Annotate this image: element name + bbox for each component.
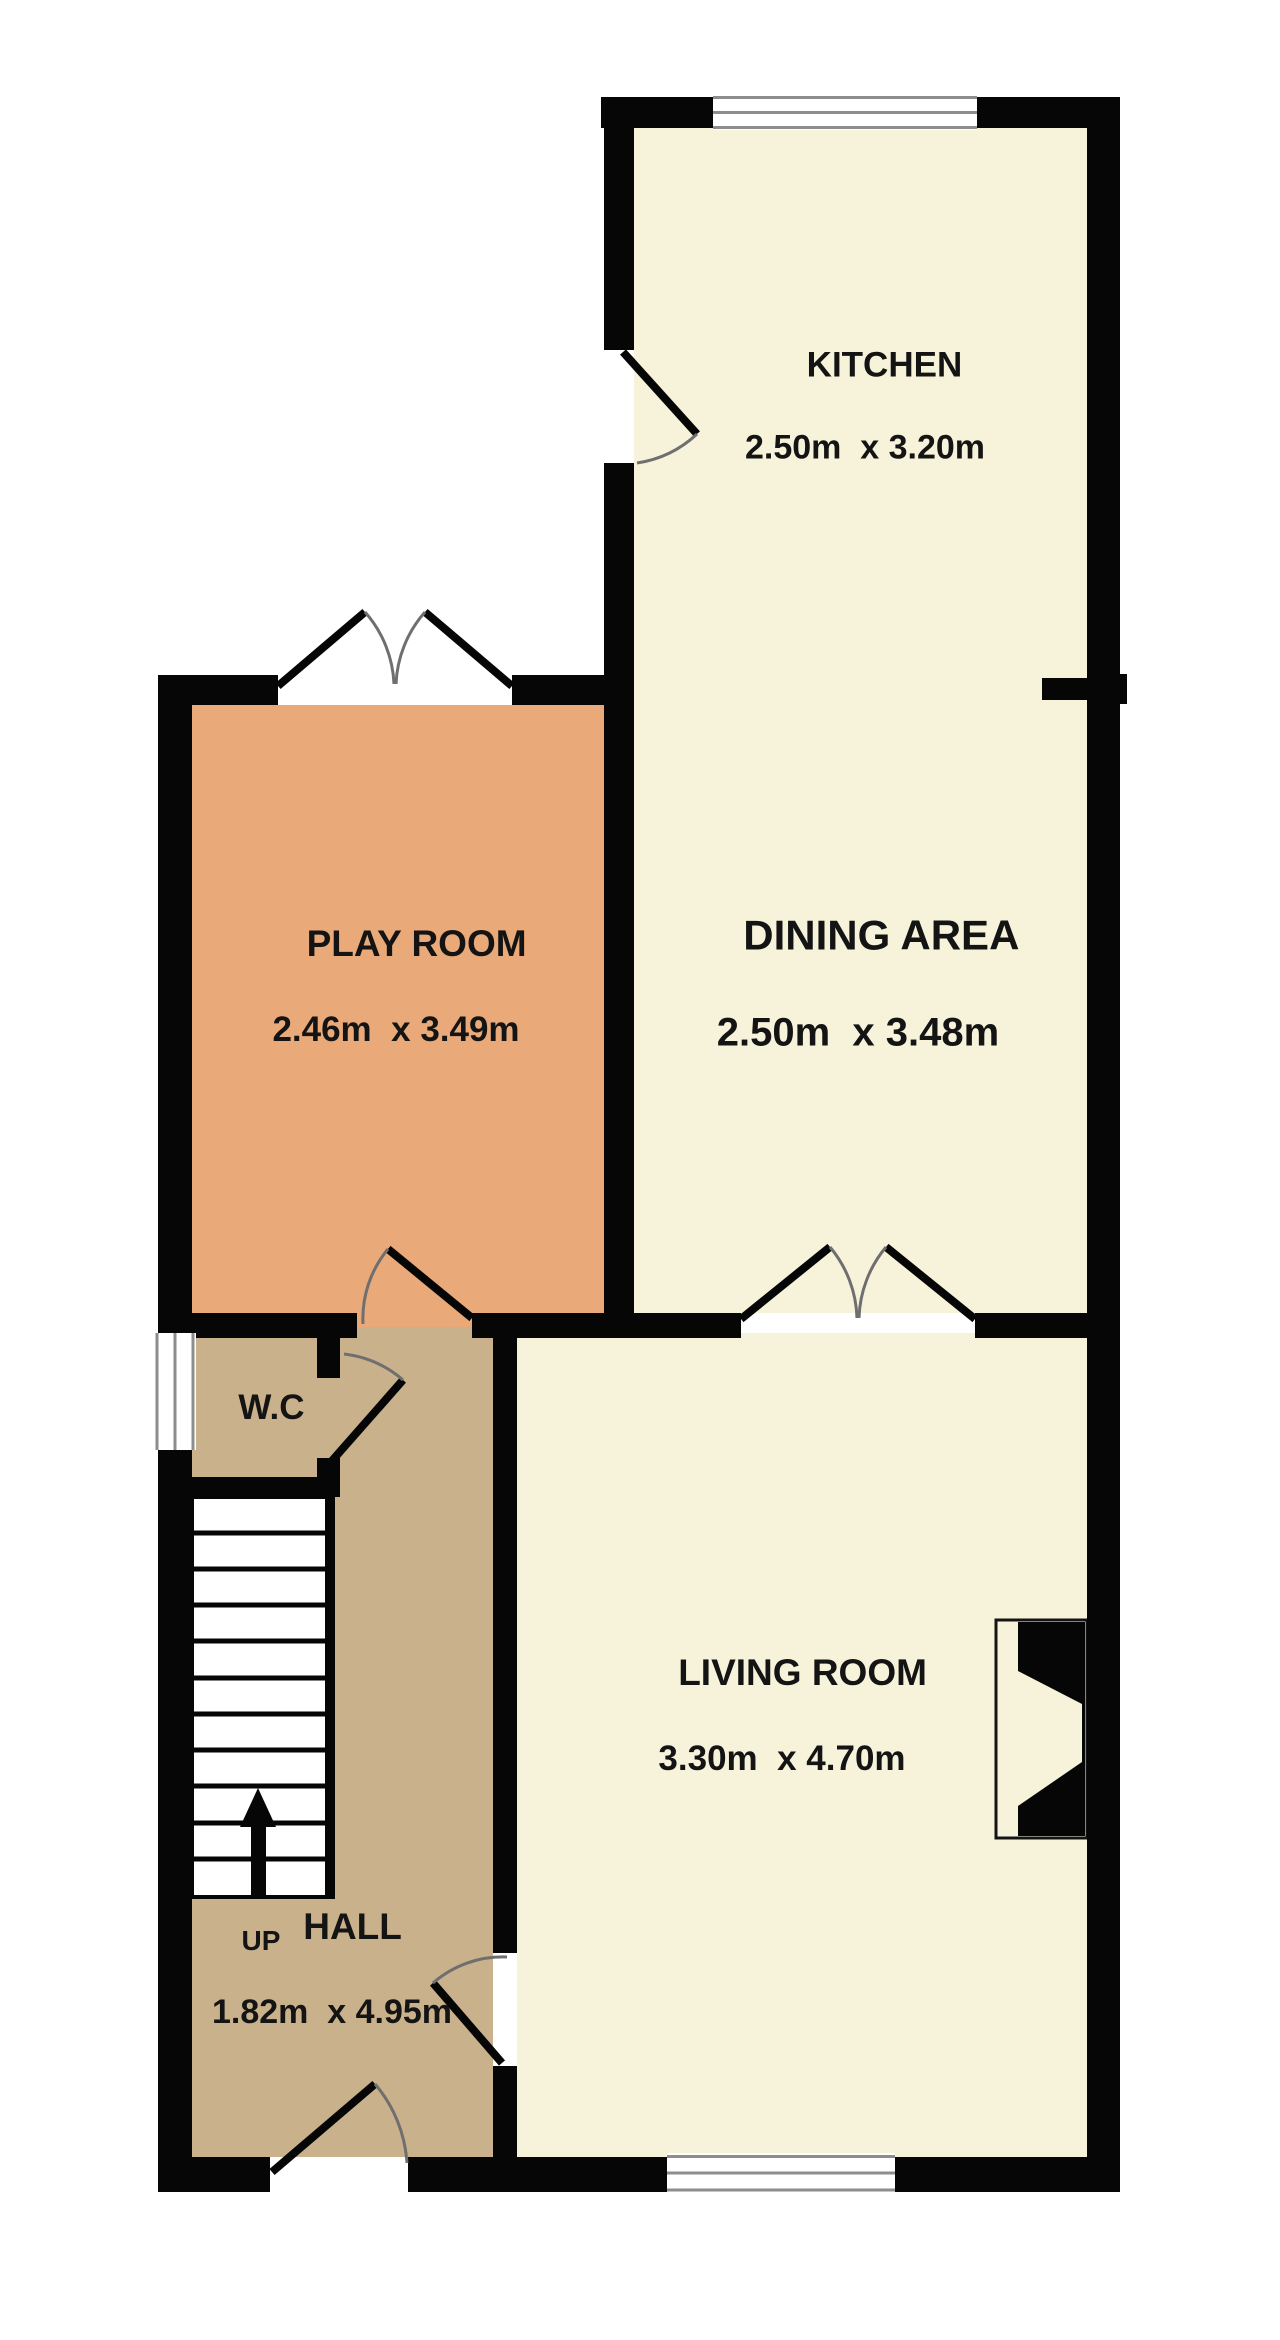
wall-segment xyxy=(604,463,634,1338)
floorplan-drawing xyxy=(0,0,1280,2340)
room-name: LIVING ROOM xyxy=(678,1652,927,1693)
wall-segment xyxy=(408,2157,667,2192)
wall-segment xyxy=(158,675,192,1333)
room-name: HALL xyxy=(303,1905,402,1946)
room-label-wc: W.C xyxy=(199,1346,304,1470)
stairs-right-rail xyxy=(325,1497,333,1897)
room-dimensions: 2.46m x 3.49m xyxy=(265,1009,526,1050)
staircase xyxy=(192,1497,333,1897)
room-dimensions: 1.82m x 4.95m xyxy=(212,1992,452,2032)
playroom-double-doors xyxy=(278,612,512,686)
wall-segment xyxy=(1120,674,1127,704)
room-label-play-room: PLAY ROOM 2.46m x 3.49m xyxy=(265,878,526,1138)
wall-segment xyxy=(1087,97,1120,2192)
wall-segment xyxy=(1042,678,1087,700)
wall-segment xyxy=(158,1450,192,2192)
wall-segment xyxy=(604,97,634,350)
room-name: DINING AREA xyxy=(743,911,1019,958)
room-name: KITCHEN xyxy=(807,346,963,385)
wall-segment xyxy=(895,2157,1120,2192)
room-label-kitchen: KITCHEN 2.50m x 3.20m xyxy=(745,304,985,551)
wall-segment xyxy=(158,2157,270,2192)
wc-window xyxy=(152,1333,196,1450)
wall-segment xyxy=(158,1477,340,1497)
room-dimensions: 2.50m x 3.20m xyxy=(745,428,985,468)
kitchen-window xyxy=(713,95,977,130)
fireplace xyxy=(996,1620,1087,1838)
room-name: PLAY ROOM xyxy=(307,923,527,964)
room-label-hall: HALL 1.82m x 4.95m xyxy=(212,1861,452,2119)
room-label-living-room: LIVING ROOM 3.30m x 4.70m xyxy=(637,1607,927,1867)
room-dimensions: 3.30m x 4.70m xyxy=(637,1738,927,1779)
room-label-dining: DINING AREA 2.50m x 3.48m xyxy=(697,861,1020,1156)
wall-segment xyxy=(975,1313,1087,1338)
living-room-window xyxy=(667,2153,895,2194)
wc-door-jamb xyxy=(317,1338,340,1378)
wall-segment xyxy=(512,675,634,705)
stairs-up-label: UP xyxy=(242,1925,281,1957)
wall-segment xyxy=(493,1333,517,1953)
floorplan: KITCHEN 2.50m x 3.20m DINING AREA 2.50m … xyxy=(0,0,1280,2340)
room-name: W.C xyxy=(238,1388,304,1427)
room-dimensions: 2.50m x 3.48m xyxy=(697,1009,1020,1056)
